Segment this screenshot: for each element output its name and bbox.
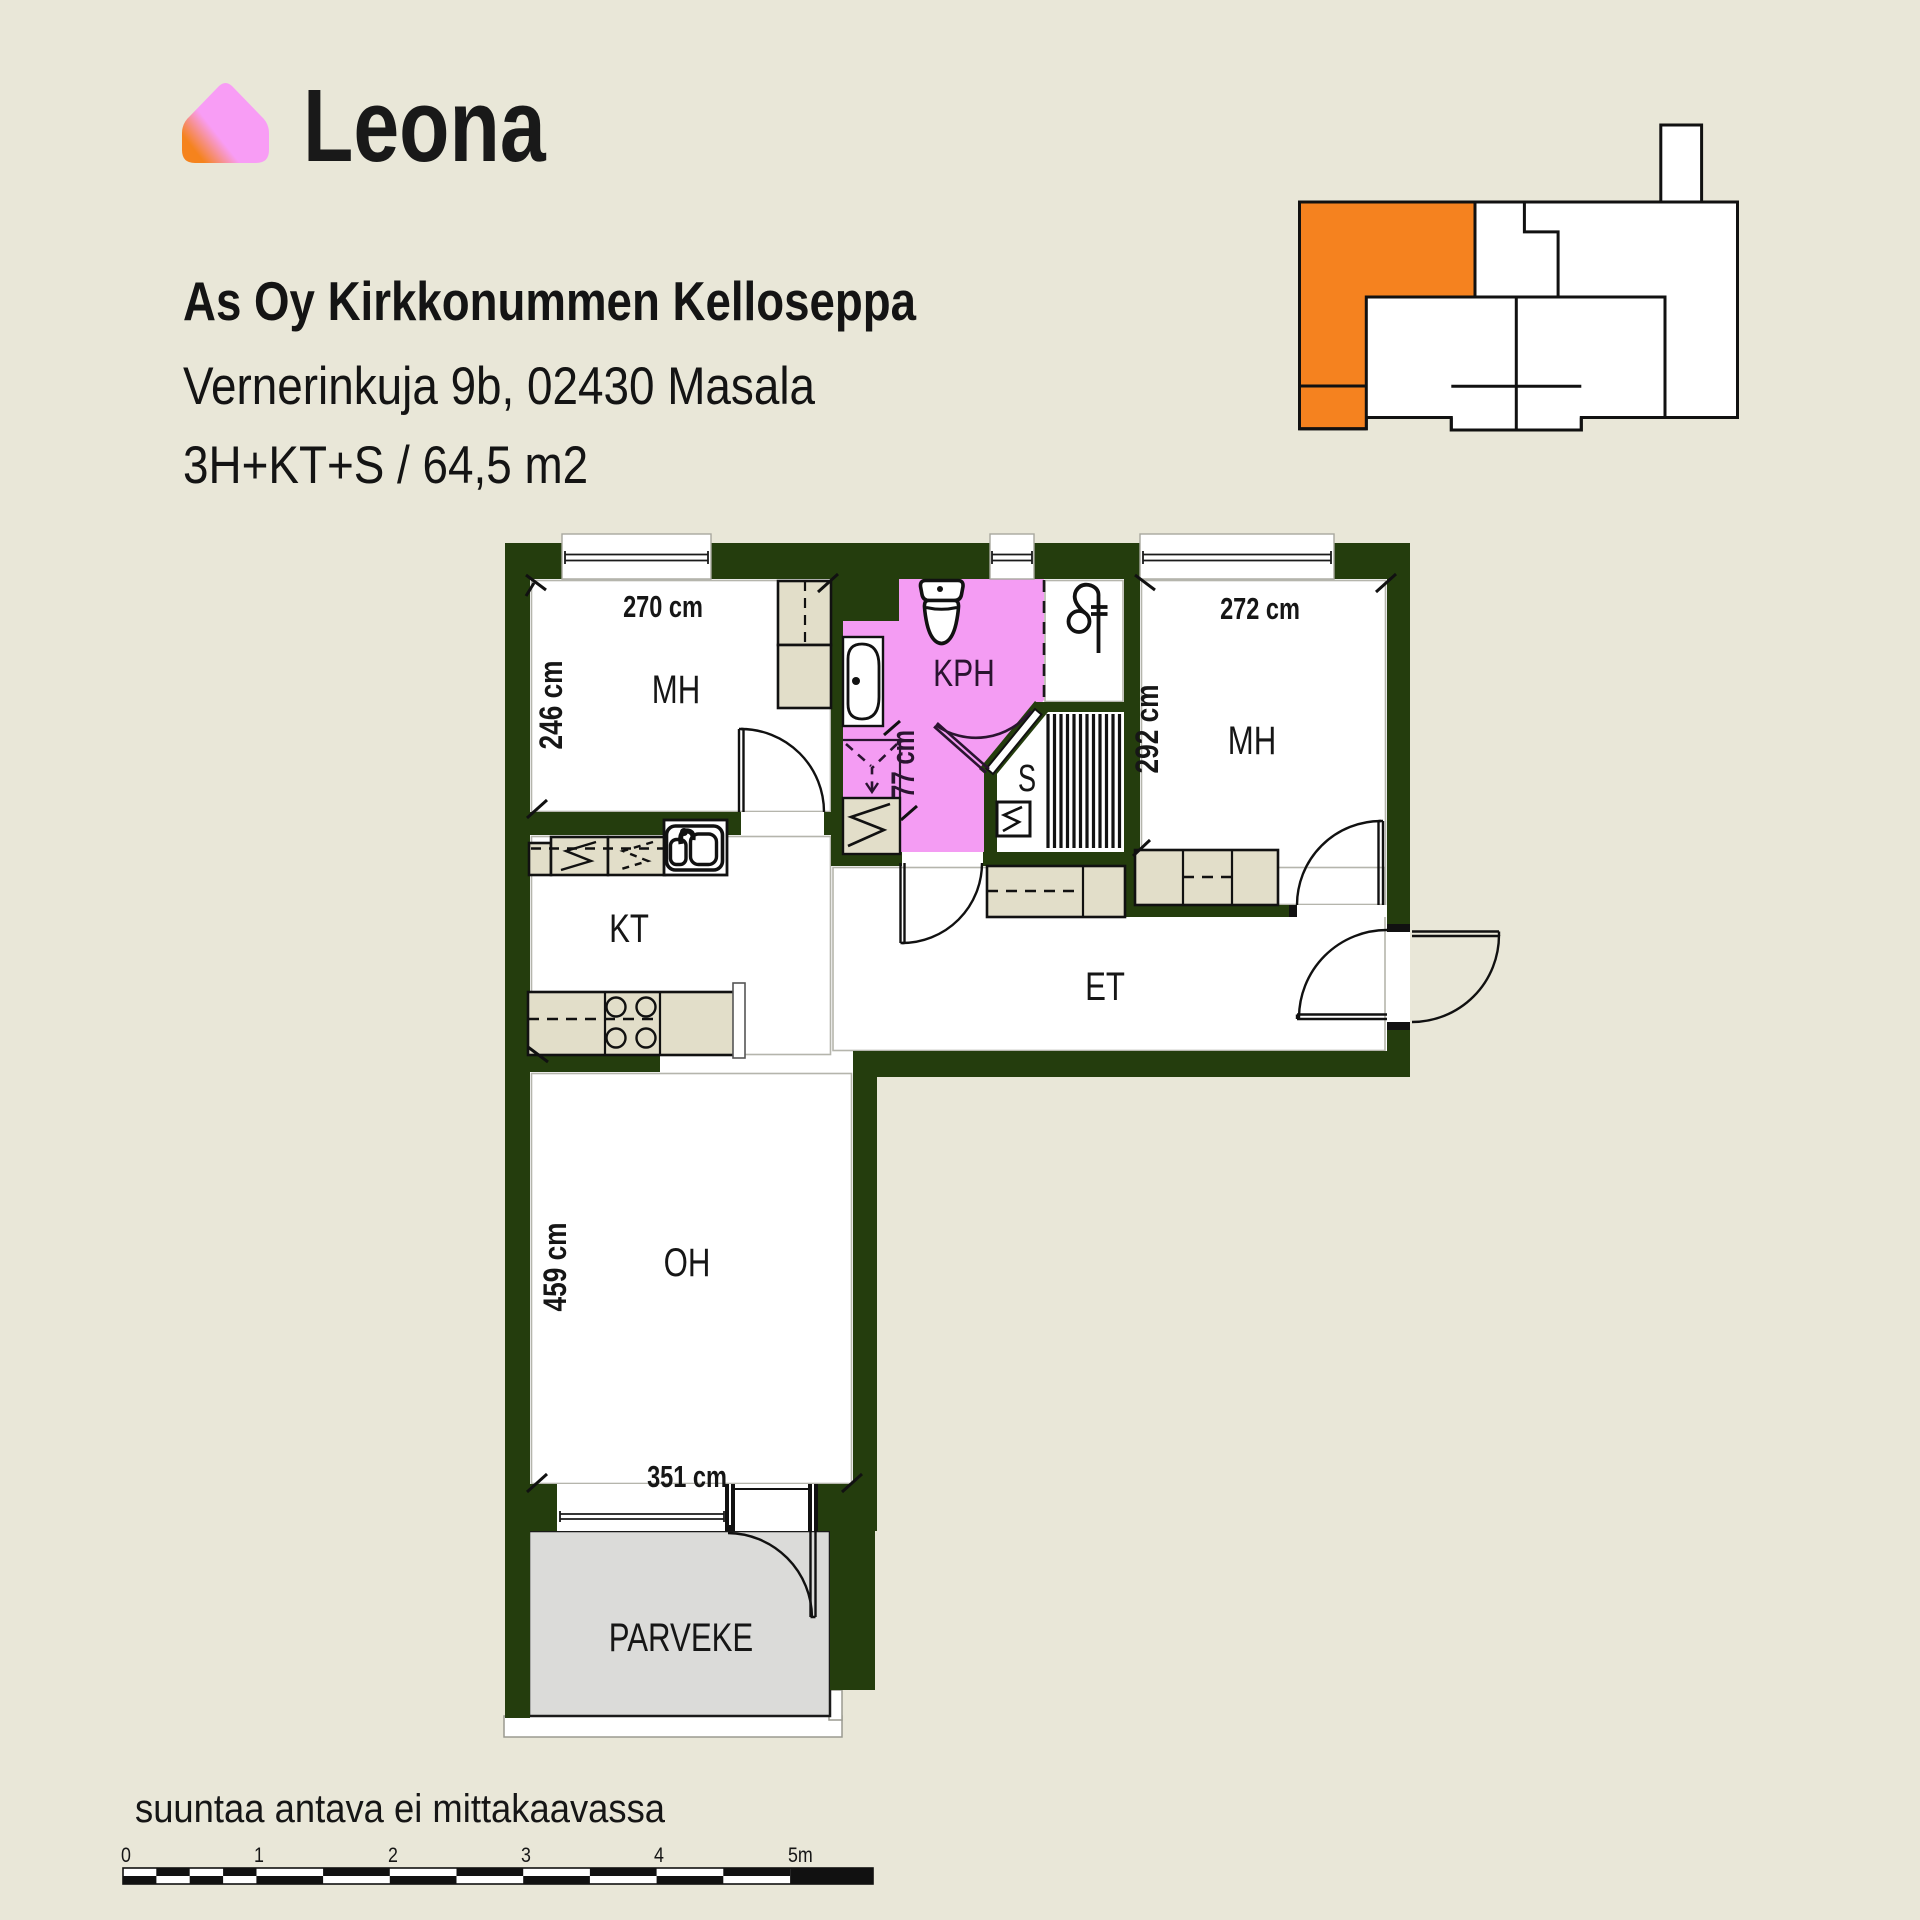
svg-text:Leona: Leona <box>303 68 547 183</box>
svg-text:1: 1 <box>254 1844 264 1868</box>
svg-text:4: 4 <box>654 1844 664 1868</box>
svg-text:459 cm: 459 cm <box>539 1223 574 1312</box>
svg-text:0: 0 <box>121 1844 131 1868</box>
svg-text:OH: OH <box>664 1240 711 1285</box>
svg-text:As Oy Kirkkonummen Kelloseppa: As Oy Kirkkonummen Kelloseppa <box>183 270 917 332</box>
svg-text:Vernerinkuja 9b, 02430 Masala: Vernerinkuja 9b, 02430 Masala <box>183 356 815 416</box>
svg-text:suuntaa antava ei mittakaavass: suuntaa antava ei mittakaavassa <box>135 1786 666 1831</box>
svg-text:ET: ET <box>1085 964 1125 1009</box>
svg-text:351 cm: 351 cm <box>647 1459 727 1494</box>
svg-text:MH: MH <box>652 667 701 712</box>
svg-text:S: S <box>1018 758 1036 800</box>
svg-text:5m: 5m <box>788 1844 813 1868</box>
svg-text:KPH: KPH <box>933 653 995 695</box>
svg-text:KT: KT <box>609 906 649 951</box>
svg-text:PARVEKE: PARVEKE <box>609 1615 753 1660</box>
svg-text:270 cm: 270 cm <box>623 589 703 624</box>
svg-text:246 cm: 246 cm <box>535 661 570 750</box>
svg-text:272 cm: 272 cm <box>1220 591 1300 626</box>
svg-text:MH: MH <box>1228 718 1277 763</box>
svg-text:292 cm: 292 cm <box>1131 685 1166 774</box>
svg-text:3H+KT+S / 64,5 m2: 3H+KT+S / 64,5 m2 <box>183 435 588 495</box>
svg-text:77 cm: 77 cm <box>885 730 921 798</box>
svg-text:3: 3 <box>521 1844 531 1868</box>
svg-text:2: 2 <box>388 1844 398 1868</box>
